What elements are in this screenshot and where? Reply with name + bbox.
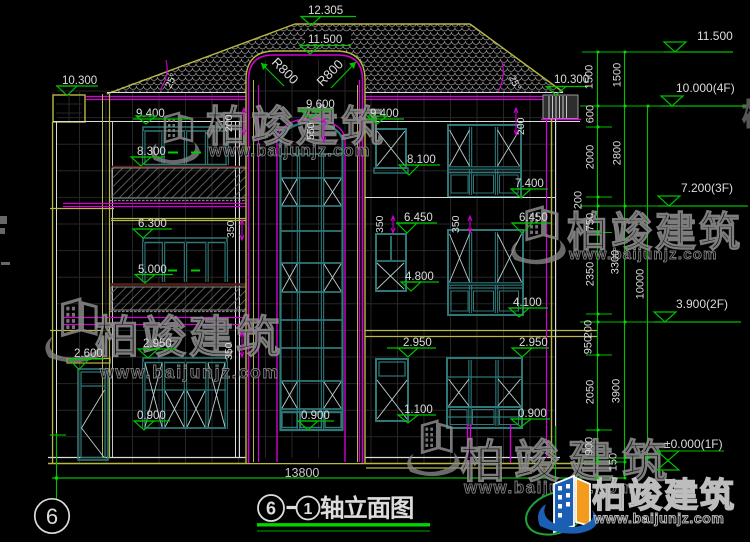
svg-text:8.300: 8.300 (137, 146, 166, 158)
svg-text:550: 550 (305, 122, 317, 140)
svg-text:6.450: 6.450 (519, 212, 548, 224)
svg-text:0.900: 0.900 (518, 408, 547, 420)
svg-text:200: 200 (573, 191, 585, 209)
svg-text:1: 1 (304, 501, 313, 518)
svg-text:600: 600 (585, 105, 597, 123)
svg-text:950: 950 (583, 336, 595, 354)
svg-text:11.500: 11.500 (697, 29, 733, 43)
svg-text:200: 200 (223, 114, 235, 132)
svg-text:3300: 3300 (610, 250, 622, 274)
svg-text:750: 750 (585, 213, 597, 231)
svg-text:6: 6 (46, 504, 58, 529)
svg-text:轴立面图: 轴立面图 (320, 494, 413, 523)
svg-text:10.300: 10.300 (62, 75, 97, 87)
svg-text:4.800: 4.800 (405, 271, 434, 283)
svg-text:6.450: 6.450 (404, 212, 433, 224)
svg-text:1500: 1500 (584, 65, 596, 89)
svg-text:200: 200 (583, 320, 595, 338)
svg-text:2.950: 2.950 (403, 337, 432, 349)
svg-text:柏竣建筑: 柏竣建筑 (95, 313, 283, 362)
svg-text:12.305: 12.305 (308, 5, 343, 17)
svg-text:8.100: 8.100 (407, 154, 436, 166)
svg-text:www.baijunjz.com: www.baijunjz.com (99, 362, 280, 382)
svg-text:2350: 2350 (585, 262, 597, 286)
svg-text:1500: 1500 (612, 63, 624, 87)
svg-text:3.900(2F): 3.900(2F) (676, 297, 728, 311)
svg-text:www.baijunjz.com: www.baijunjz.com (208, 142, 371, 160)
svg-text:350: 350 (450, 215, 462, 233)
svg-text:2.950: 2.950 (143, 338, 172, 350)
svg-text:1.100: 1.100 (404, 404, 433, 416)
svg-text:2800: 2800 (612, 141, 624, 165)
svg-text:11.500: 11.500 (308, 34, 342, 46)
svg-text:www.baijunjz.com: www.baijunjz.com (568, 246, 718, 263)
svg-text:350: 350 (223, 342, 235, 360)
svg-text:6: 6 (266, 499, 276, 519)
svg-text:13800: 13800 (285, 466, 320, 480)
svg-text:7.400: 7.400 (515, 178, 544, 190)
svg-text:2.950: 2.950 (519, 337, 548, 349)
svg-text:2.600: 2.600 (74, 348, 103, 360)
svg-text:柏: 柏 (742, 99, 750, 132)
svg-text:±0.000(1F): ±0.000(1F) (664, 437, 723, 451)
svg-text:2000: 2000 (585, 145, 597, 169)
svg-text:2050: 2050 (585, 380, 597, 404)
svg-text:350: 350 (374, 215, 386, 233)
svg-text:0.900: 0.900 (137, 410, 166, 422)
svg-text:10000: 10000 (635, 269, 647, 300)
svg-text:7.200(3F): 7.200(3F) (681, 181, 733, 195)
svg-text:6.300: 6.300 (138, 218, 167, 230)
svg-text:9.600: 9.600 (306, 99, 335, 111)
svg-text:10.000(4F): 10.000(4F) (676, 81, 735, 95)
svg-text:0.900: 0.900 (301, 410, 330, 422)
svg-text:900: 900 (584, 437, 596, 455)
svg-text:4.100: 4.100 (513, 297, 542, 309)
svg-text:9.400: 9.400 (136, 108, 165, 120)
svg-text:350: 350 (225, 220, 237, 238)
svg-text:www.baijunjz.com: www.baijunjz.com (593, 510, 724, 526)
svg-text:150: 150 (608, 453, 620, 471)
svg-text:3900: 3900 (611, 379, 623, 403)
